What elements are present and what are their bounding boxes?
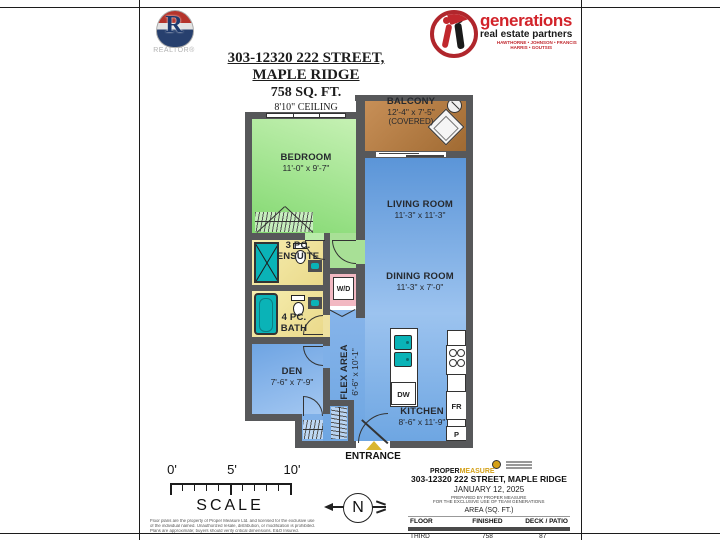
bedroom-window: [266, 113, 346, 118]
door-opening: [305, 233, 324, 240]
room-label-balcony: BALCONY 12'-4" x 7'-5" (COVERED): [368, 96, 454, 127]
room-name: BATH: [268, 323, 320, 334]
room-dims: 8'-6" x 11'-9": [390, 417, 454, 427]
contact-line: [506, 464, 532, 466]
entrance-arrow-icon: [366, 441, 382, 450]
wall: [356, 101, 365, 240]
closet-rod: [255, 221, 313, 222]
brokerage-text: generations real estate partners HAWTHOR…: [480, 12, 578, 53]
contact-line: [506, 461, 532, 463]
logo-word-black: PROPER: [430, 468, 460, 475]
room-dims: 11'-3" x 7'-0": [382, 282, 458, 292]
room-name: FLEX AREA: [339, 332, 350, 412]
wall: [466, 95, 473, 448]
room-label-living: LIVING ROOM 11'-3" x 11'-3": [382, 199, 458, 220]
page-frame-line: [581, 0, 582, 540]
brokerage-logo: generations real estate partners HAWTHOR…: [430, 8, 578, 58]
scale-tick: [278, 483, 279, 491]
col-header-deck-patio: DECK / PATIO: [517, 518, 568, 525]
sink-fixture: [308, 297, 322, 309]
scale-tick: [230, 483, 232, 495]
wall: [245, 414, 302, 421]
closet-rod: [303, 429, 323, 430]
window-mullion: [293, 114, 294, 117]
room-name: 4 PC.: [268, 312, 320, 323]
room-name: ENSUITE: [272, 251, 324, 262]
scale-tick: [218, 483, 219, 491]
brokerage-badge-icon: [430, 10, 478, 58]
door-opening: [356, 240, 365, 264]
area-table-header: FLOOR FINISHED DECK / PATIO: [408, 516, 570, 526]
room-name: BEDROOM: [266, 152, 346, 163]
cell-finished: 758: [457, 533, 517, 540]
room-label-den: DEN 7'-6" x 7'-9": [264, 366, 320, 387]
room-dims: 11'-3" x 11'-3": [382, 210, 458, 220]
info-area-heading: AREA (SQ. FT.): [408, 507, 570, 514]
page-frame-line: [139, 0, 140, 540]
burner: [449, 359, 457, 367]
room-dims: 7'-6" x 7'-9": [264, 377, 320, 387]
sink-drain: [406, 341, 409, 344]
room-label-dining: DINING ROOM 11'-3" x 7'-0": [382, 271, 458, 292]
scale-tick: [182, 483, 183, 491]
page-frame-line: [0, 7, 720, 8]
entrance-label: ENTRANCE: [337, 451, 409, 463]
logo-word-gold: MEASURE: [460, 468, 495, 475]
wall: [245, 285, 330, 291]
window-mullion: [319, 114, 320, 117]
info-address: 303-12320 222 STREET, MAPLE RIDGE: [408, 474, 570, 484]
scale-tick: [242, 483, 243, 491]
wall: [323, 291, 330, 315]
wall: [356, 264, 365, 318]
cell-floor: THIRD: [410, 533, 457, 540]
wall: [295, 414, 302, 448]
burner: [457, 349, 465, 357]
scale-tick: [170, 483, 172, 495]
room-label-ensuite: 3 PC. ENSUITE: [272, 240, 324, 262]
realtor-wordmark: REALTOR®: [148, 47, 200, 54]
scale-tick: [206, 483, 207, 491]
washer-dryer-box: W/D: [333, 277, 354, 300]
room-name: DINING ROOM: [382, 271, 458, 282]
col-header-finished: FINISHED: [457, 518, 517, 525]
realtor-logo: R REALTOR®: [148, 10, 200, 58]
stove-fixture: [446, 345, 467, 375]
scale-tick: [266, 483, 267, 491]
floorplan-page: R REALTOR® generations real estate partn…: [0, 0, 720, 540]
sink-drain: [406, 358, 409, 361]
compass-arrowhead-icon: [324, 503, 333, 511]
room-label-bath: 4 PC. BATH: [268, 312, 320, 334]
room-dims: 6'-6" x 10'-1": [350, 332, 360, 412]
room-note: (COVERED): [368, 117, 454, 126]
title-address-line2: MAPLE RIDGE: [216, 67, 396, 84]
info-panel: PROPERMEASURE 303-12320 222 STREET, MAPL…: [408, 458, 570, 540]
burner: [457, 359, 465, 367]
brokerage-tagline: real estate partners: [480, 29, 578, 41]
north-compass: N: [326, 486, 390, 530]
proper-measure-logo: PROPERMEASURE: [430, 460, 550, 472]
compass-fletching: [376, 500, 386, 505]
room-name: DEN: [264, 366, 320, 377]
contact-line: [506, 467, 532, 469]
disclaimer-line: Plans are approximate; buyers should ver…: [150, 529, 316, 535]
compass-fletching: [376, 508, 386, 513]
info-date: JANUARY 12, 2025: [408, 485, 570, 494]
badge-figure-red: [442, 24, 453, 49]
room-label-kitchen: KITCHEN 8'-6" x 11'-9": [390, 406, 454, 427]
wall: [323, 337, 330, 346]
scale-tick: [254, 483, 255, 491]
room-name: LIVING ROOM: [382, 199, 458, 210]
scale-tick-label-10: 10': [279, 462, 305, 477]
scale-label: SCALE: [180, 497, 280, 515]
scale-tick-label-0: 0': [162, 462, 182, 477]
sliding-panel: [379, 153, 419, 155]
measuring-tape-icon: [492, 460, 501, 469]
wall: [245, 112, 252, 421]
col-header-floor: FLOOR: [410, 518, 457, 525]
room-label-bedroom: BEDROOM 11'-0" x 9'-7": [266, 152, 346, 173]
title-address-line1: 303-12320 222 STREET,: [216, 50, 396, 67]
cell-deck-patio: 87: [517, 533, 568, 540]
room-name: KITCHEN: [390, 406, 454, 417]
scale-tick: [194, 483, 195, 491]
scale-tick-label-5: 5': [222, 462, 242, 477]
pantry-box: P: [446, 426, 467, 441]
room-dims: 12'-4" x 7'-5": [368, 107, 454, 117]
door-opening: [323, 346, 330, 368]
compass-north-label: N: [343, 493, 373, 523]
dishwasher-box: DW: [391, 382, 416, 405]
bedroom-closet-hatch: [255, 212, 313, 232]
info-exclusive-use: FOR THE EXCLUSIVE USE OF TEAM GENERATION…: [408, 500, 570, 506]
burner: [449, 349, 457, 357]
brokerage-name: generations: [480, 12, 578, 29]
room-name: BALCONY: [368, 96, 454, 107]
kitchen-sink: [394, 335, 412, 350]
wall: [323, 368, 330, 414]
badge-figure-black: [454, 23, 465, 50]
sink-basin: [311, 300, 319, 306]
door-opening: [323, 315, 330, 337]
scale-tick: [290, 483, 292, 495]
toilet-tank: [291, 295, 305, 301]
room-label-flex: FLEX AREA 6'-6" x 10'-1": [339, 332, 365, 412]
room-name: 3 PC.: [272, 240, 324, 251]
area-table-row: THIRD 758 87: [408, 531, 570, 540]
wall: [245, 337, 330, 344]
room-dims: 11'-0" x 9'-7": [266, 163, 346, 173]
sliding-panel: [406, 155, 444, 157]
balcony-sliding-door: [376, 152, 446, 157]
sink-basin: [311, 263, 319, 269]
realtor-r-letter: R: [156, 12, 192, 44]
kitchen-sink: [394, 352, 412, 367]
agents-line-2: HARRIS • GOUTSIS: [497, 46, 598, 52]
